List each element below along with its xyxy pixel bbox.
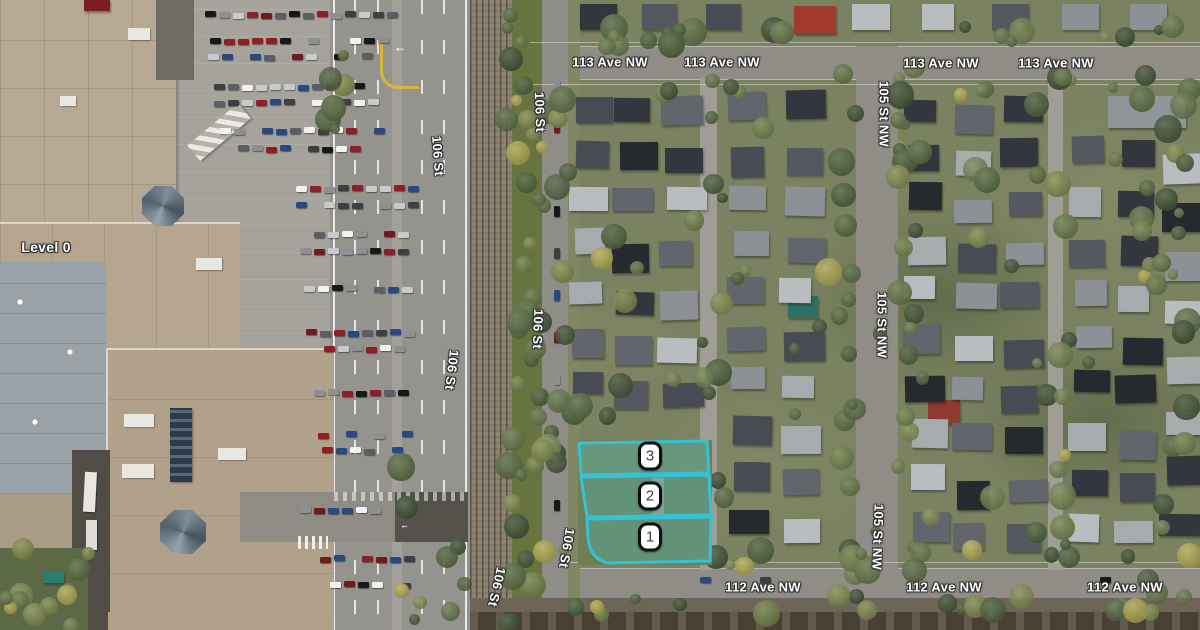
- street-label-105-st-1: 105 St NW: [877, 81, 892, 147]
- street-label-113-ave-3: 113 Ave NW: [903, 56, 979, 71]
- street-label-105-st-2: 105 St NW: [875, 292, 890, 358]
- parcel-marker-3[interactable]: 3: [638, 442, 662, 471]
- street-label-113-ave-2: 113 Ave NW: [684, 55, 760, 70]
- street-label-112-ave-1: 112 Ave NW: [725, 580, 801, 595]
- street-label-106-st-3: 106 St: [530, 309, 546, 350]
- parcel-overlay: [0, 0, 1200, 630]
- satellite-map[interactable]: ← ← ← 113 Ave NW113 Ave NW113 Ave NW113 …: [0, 0, 1200, 630]
- street-label-113-ave-1: 113 Ave NW: [572, 55, 648, 70]
- street-label-113-ave-4: 113 Ave NW: [1018, 56, 1094, 71]
- street-label-105-st-3: 105 St NW: [869, 504, 886, 571]
- street-label-112-ave-2: 112 Ave NW: [906, 580, 982, 595]
- street-label-106-st-1: 106 St: [429, 135, 447, 176]
- level-label: Level 0: [21, 239, 71, 255]
- parcel-marker-2[interactable]: 2: [638, 482, 662, 511]
- street-label-106-st-2: 106 St: [532, 92, 548, 133]
- street-label-112-ave-3: 112 Ave NW: [1087, 580, 1163, 595]
- parcel-marker-1[interactable]: 1: [638, 523, 662, 552]
